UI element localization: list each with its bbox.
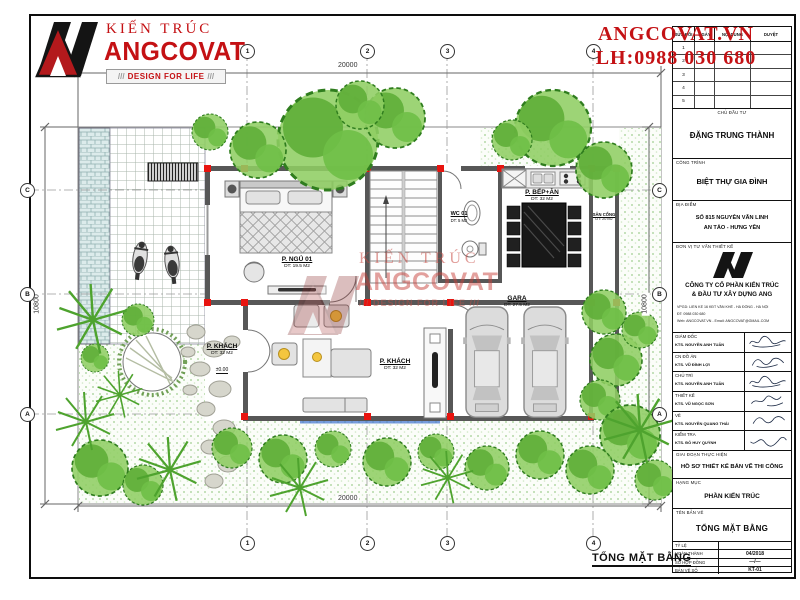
project-section: CÔNG TRÌNH BIỆT THỰ GIA ĐÌNH — [673, 159, 791, 201]
grid-bubble-col: 2 — [360, 44, 375, 59]
logo-icon — [34, 19, 100, 79]
grid-bubble-col: 4 — [586, 536, 601, 551]
signature-row: THIẾT KẾKTS. VŨ NGỌC SƠN — [673, 392, 791, 412]
signature-mark — [744, 372, 791, 391]
sheet-info-row: TỶ LỆ — [673, 542, 791, 550]
consultant-logo-icon — [712, 251, 754, 279]
dimension-top: 20000 — [336, 62, 359, 70]
signature-mark — [744, 353, 791, 372]
architectural-sheet: 1 2 3 4 1 2 3 4 C B A C B A 20000 20000 … — [0, 0, 800, 600]
revision-row: 5 — [673, 96, 791, 108]
revision-row: 3 — [673, 69, 791, 82]
investor-section: CHỦ ĐẦU TƯ ĐẶNG TRUNG THÀNH — [673, 109, 791, 159]
room-label-living-entry: P. KHÁCH DT: 32 M2 ±0.00 — [194, 343, 250, 377]
consultant-contact: Web: ANGCOVAT.VN - Email: ANGCOVAT@GMAIL… — [677, 319, 789, 323]
phase-value: HỒ SƠ THIẾT KẾ BẢN VẼ THI CÔNG — [673, 464, 791, 470]
company-logo: KIẾN TRÚC ANGCOVAT /// DESIGN FOR LIFE /… — [34, 19, 234, 95]
signature-row: CN ĐỒ ÁNKTS. VŨ ĐÌNH LỢI — [673, 353, 791, 373]
signature-row: GIÁM ĐỐCKTS. NGUYỄN ANH TUẤN — [673, 333, 791, 353]
consultant-contact: VPGD: LIỀN KỀ 16 KĐT VĂN KHÊ - HÀ ĐÔNG -… — [677, 305, 789, 309]
website-text: ANGCOVAT.VN — [556, 22, 796, 46]
signature-mark — [744, 412, 791, 431]
consultant-company-line2: & ĐẦU TƯ XÂY DỰNG ANG — [673, 291, 791, 298]
phase-section: GIAI ĐOẠN THỰC HIỆN HỒ SƠ THIẾT KẾ BẢN V… — [673, 451, 791, 479]
hatch-mark: /// — [118, 72, 125, 81]
grid-bubble-col: 2 — [360, 536, 375, 551]
project-name: BIỆT THỰ GIA ĐÌNH — [673, 177, 791, 186]
dimension-bottom: 20000 — [336, 495, 359, 503]
signature-row: VẼKTS. NGUYỄN QUANG THÁI — [673, 412, 791, 432]
title-block: SỬA ĐỔI NGÀY NỘI DUNG DUYỆT 1 2 3 4 5 CH… — [672, 26, 792, 573]
investor-name: ĐẶNG TRUNG THÀNH — [673, 131, 791, 140]
phone-text: LH:0988 030 680 — [556, 46, 796, 70]
sheet-info-row: BẢN VẼ SỐKT-01 — [673, 567, 791, 574]
room-label-garage: GARA DT: 27.5 M2 — [488, 295, 546, 309]
signature-mark — [744, 431, 791, 450]
grid-bubble-col: 3 — [440, 44, 455, 59]
location-section: ĐỊA ĐIỂM SỐ 815 NGUYỄN VĂN LINH AN TẢO -… — [673, 201, 791, 243]
dimension-right: 10800 — [642, 292, 650, 315]
grid-bubble-row: A — [20, 407, 35, 422]
drawing-name-section: TÊN BẢN VẼ TỔNG MẶT BẰNG — [673, 509, 791, 542]
room-label-wc: WC 01 DT: 5 M2 — [441, 211, 477, 223]
consultant-company-line1: CÔNG TY CỔ PHẦN KIẾN TRÚC — [673, 282, 791, 289]
drawing-title: TỔNG MẶT BẰNG — [592, 552, 691, 567]
hatch-mark: /// — [207, 72, 214, 81]
category-section: HẠNG MỤC PHẦN KIẾN TRÚC — [673, 479, 791, 509]
location-line2: AN TẢO - HƯNG YÊN — [673, 225, 791, 231]
grid-bubble-row: B — [652, 287, 667, 302]
location-line1: SỐ 815 NGUYỄN VĂN LINH — [673, 215, 791, 221]
room-label-kitchen: P. BẾP+ĂN DT: 32 M2 — [506, 189, 578, 203]
revision-row: 4 — [673, 82, 791, 95]
signature-row: KIỂM TRAKTS. ĐỖ HUY QUỲNH — [673, 431, 791, 450]
dimension-left: 10800 — [34, 292, 42, 315]
logo-tagline: /// DESIGN FOR LIFE /// — [106, 69, 226, 84]
contact-overlay: ANGCOVAT.VN LH:0988 030 680 — [556, 22, 796, 70]
grid-bubble-col: 3 — [440, 536, 455, 551]
room-label-bedroom: P. NGỦ 01 DT: 19.5 M2 — [258, 256, 336, 270]
logo-brand-name: ANGCOVAT — [104, 36, 245, 67]
grid-bubble-row: B — [20, 287, 35, 302]
category-value: PHẦN KIẾN TRÚC — [673, 493, 791, 500]
room-label-gate-yard: SÂN CỔNG DT: 20 M2 — [592, 212, 616, 222]
signature-row: CHỦ TRÌKTS. NGUYỄN ANH TUẤN — [673, 372, 791, 392]
drawing-name-value: TỔNG MẶT BẰNG — [673, 524, 791, 533]
grid-bubble-col: 1 — [240, 536, 255, 551]
grid-bubble-row: C — [652, 183, 667, 198]
grid-bubble-row: C — [20, 183, 35, 198]
room-label-living: P. KHÁCH DT: 32 M2 — [364, 358, 426, 372]
signature-mark — [744, 392, 791, 411]
consultant-section: ĐƠN VỊ TƯ VẤN THIẾT KẾ CÔNG TY CỔ PHẦN K… — [673, 243, 791, 333]
grid-bubble-row: A — [652, 407, 667, 422]
signature-table: GIÁM ĐỐCKTS. NGUYỄN ANH TUẤN CN ĐỒ ÁNKTS… — [673, 333, 791, 451]
consultant-contact: ĐT: 0988 030 680 — [677, 312, 789, 316]
signature-mark — [744, 333, 791, 352]
